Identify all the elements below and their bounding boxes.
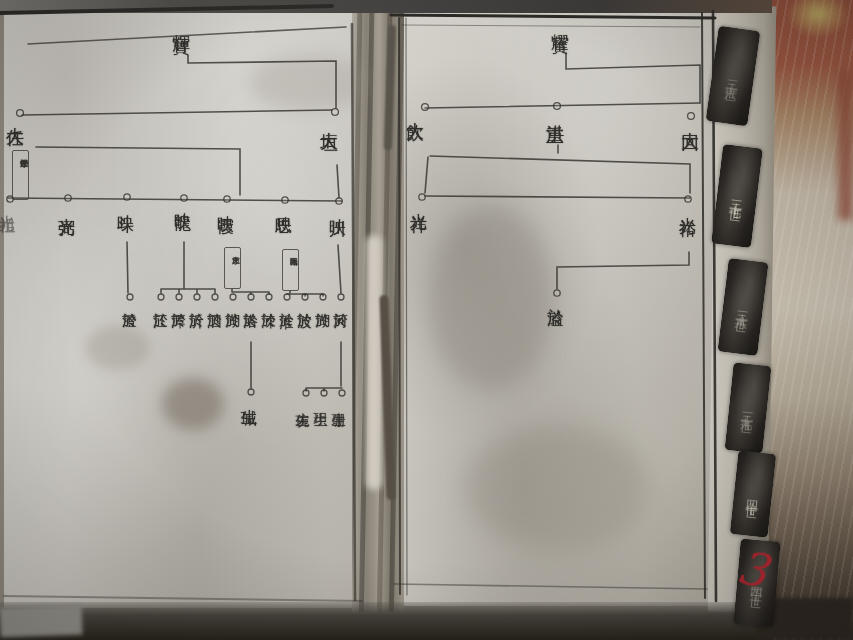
person-name: 映霞: [217, 202, 234, 206]
person-name: 生珊: [332, 401, 346, 403]
note-box: 鳳陽衛: [282, 249, 299, 291]
person-name: 洪重: [546, 110, 564, 114]
person-name: 映龍: [174, 199, 191, 203]
person-name: 於淮: [279, 301, 294, 303]
person-name: 於江: [153, 301, 168, 303]
person-name: 生瑊: [241, 396, 257, 398]
person-name-ancestor-right: 耀寳: [551, 19, 569, 23]
generation-tab-label: 三十八世: [736, 300, 750, 313]
generation-tab-label: 四十世: [746, 489, 759, 499]
person-name: 於溢: [547, 296, 563, 300]
person-name: 大垣: [320, 118, 338, 122]
person-name: 映思: [275, 203, 292, 207]
person-name: 映川: [329, 205, 346, 209]
generation-tab-label: 三十六世: [726, 69, 740, 83]
person-name-ancestor-left: 輝寳: [172, 20, 190, 24]
person-name: 於波: [297, 301, 312, 303]
person-name: 於湖: [225, 301, 240, 303]
person-name: 於澄: [122, 301, 137, 303]
person-name: 於湖: [315, 301, 330, 303]
person-name: 映斗: [117, 201, 134, 205]
generation-tab-label: 三十九世: [741, 401, 755, 414]
person-name: 大回: [681, 118, 699, 122]
person-name: 於潭: [171, 301, 186, 303]
note-box: 歷授守備: [12, 150, 29, 200]
person-name: 大任: [6, 113, 24, 117]
generation-tab-label: 三十七世: [730, 189, 744, 202]
person-name: 大飲: [406, 108, 424, 112]
person-name: 於洛: [243, 301, 258, 303]
person-name: 於洓: [261, 301, 276, 303]
person-name: 於沂: [189, 301, 204, 303]
person-name: 光弼: [58, 205, 75, 209]
person-name: 於河: [333, 301, 348, 303]
person-name: 於泗: [207, 301, 222, 303]
genealogy-book-photo: 輝寳 大任 歷授守備 大垣 光祖 光弼 映斗 映龍 映霞 天寧庄 映思 鳳陽衛 …: [0, 0, 853, 640]
note-box: 天寧庄: [224, 247, 241, 289]
person-name: 光祖: [0, 202, 15, 206]
person-name: 光裕: [679, 204, 696, 208]
person-name: 光祥: [410, 200, 427, 204]
person-name: 生琬: [296, 401, 310, 403]
person-name: 生珼: [314, 401, 328, 403]
